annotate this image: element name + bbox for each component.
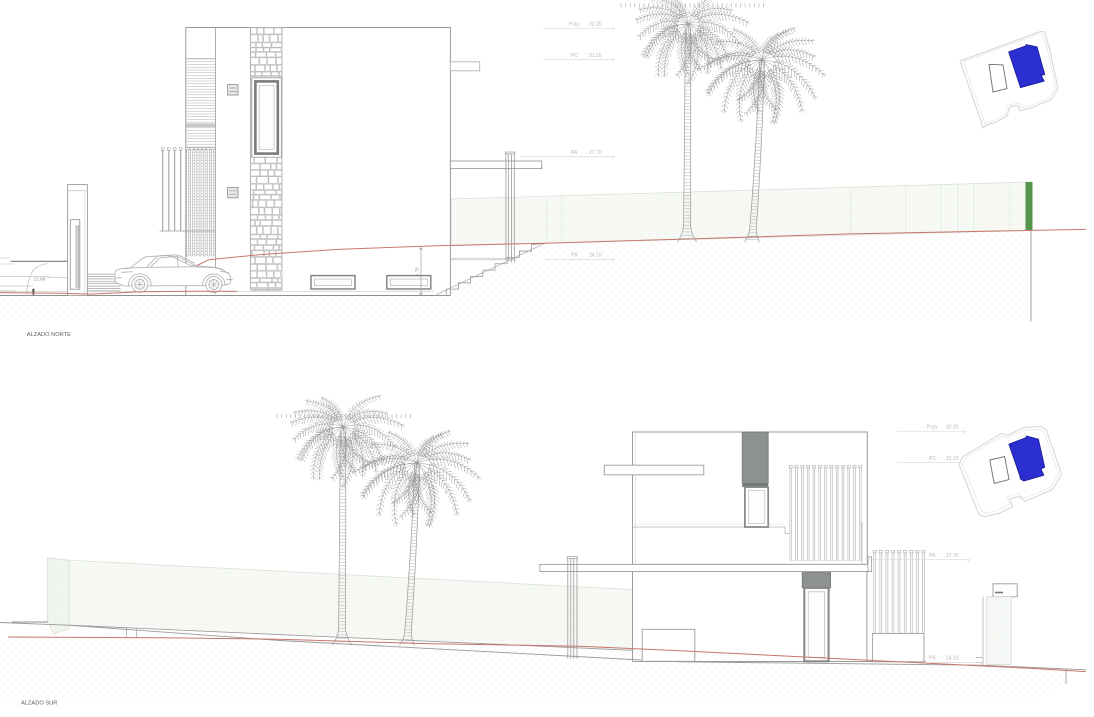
svg-text:31.15: 31.15 (589, 53, 602, 59)
svg-text:PA: PA (571, 150, 578, 156)
svg-text:PA: PA (929, 553, 936, 559)
svg-text:27.70: 27.70 (946, 553, 959, 559)
svg-text:1.75: 1.75 (415, 267, 420, 276)
svg-text:27.70: 27.70 (589, 150, 602, 156)
svg-text:24.10: 24.10 (946, 656, 959, 662)
svg-text:Pcta: Pcta (569, 21, 579, 27)
svg-text:24.10: 24.10 (589, 253, 602, 259)
svg-text:ALZADO NORTE: ALZADO NORTE (27, 332, 71, 338)
svg-text:Pcta: Pcta (927, 424, 937, 430)
svg-text:22.86: 22.86 (34, 277, 46, 283)
svg-text:PC: PC (929, 456, 936, 462)
svg-text:PB: PB (929, 656, 936, 662)
svg-text:PB: PB (571, 253, 578, 259)
svg-text:32.20: 32.20 (589, 21, 602, 27)
svg-text:32.20: 32.20 (946, 424, 959, 430)
svg-text:PC: PC (571, 53, 578, 59)
svg-text:31.15: 31.15 (946, 456, 959, 462)
svg-text:ALZADO SUR: ALZADO SUR (21, 701, 57, 707)
